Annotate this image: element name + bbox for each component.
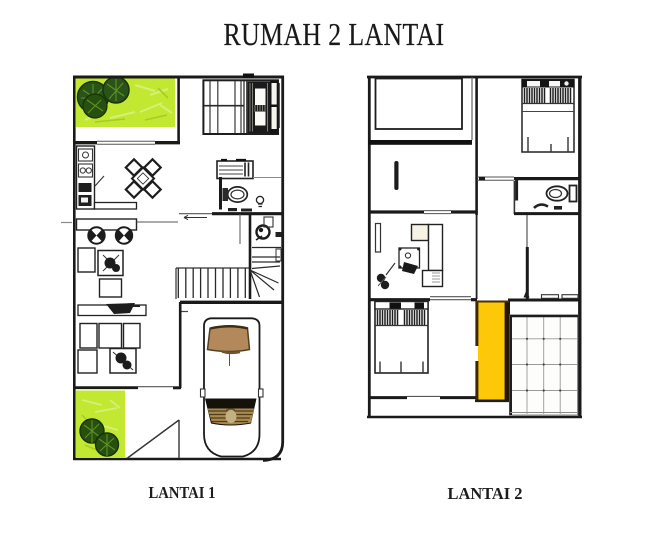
svg-text:LANTAI 1: LANTAI 1 [149,483,216,502]
svg-text:LANTAI 2: LANTAI 2 [448,484,523,503]
svg-text:RUMAH 2 LANTAI: RUMAH 2 LANTAI [224,16,445,52]
